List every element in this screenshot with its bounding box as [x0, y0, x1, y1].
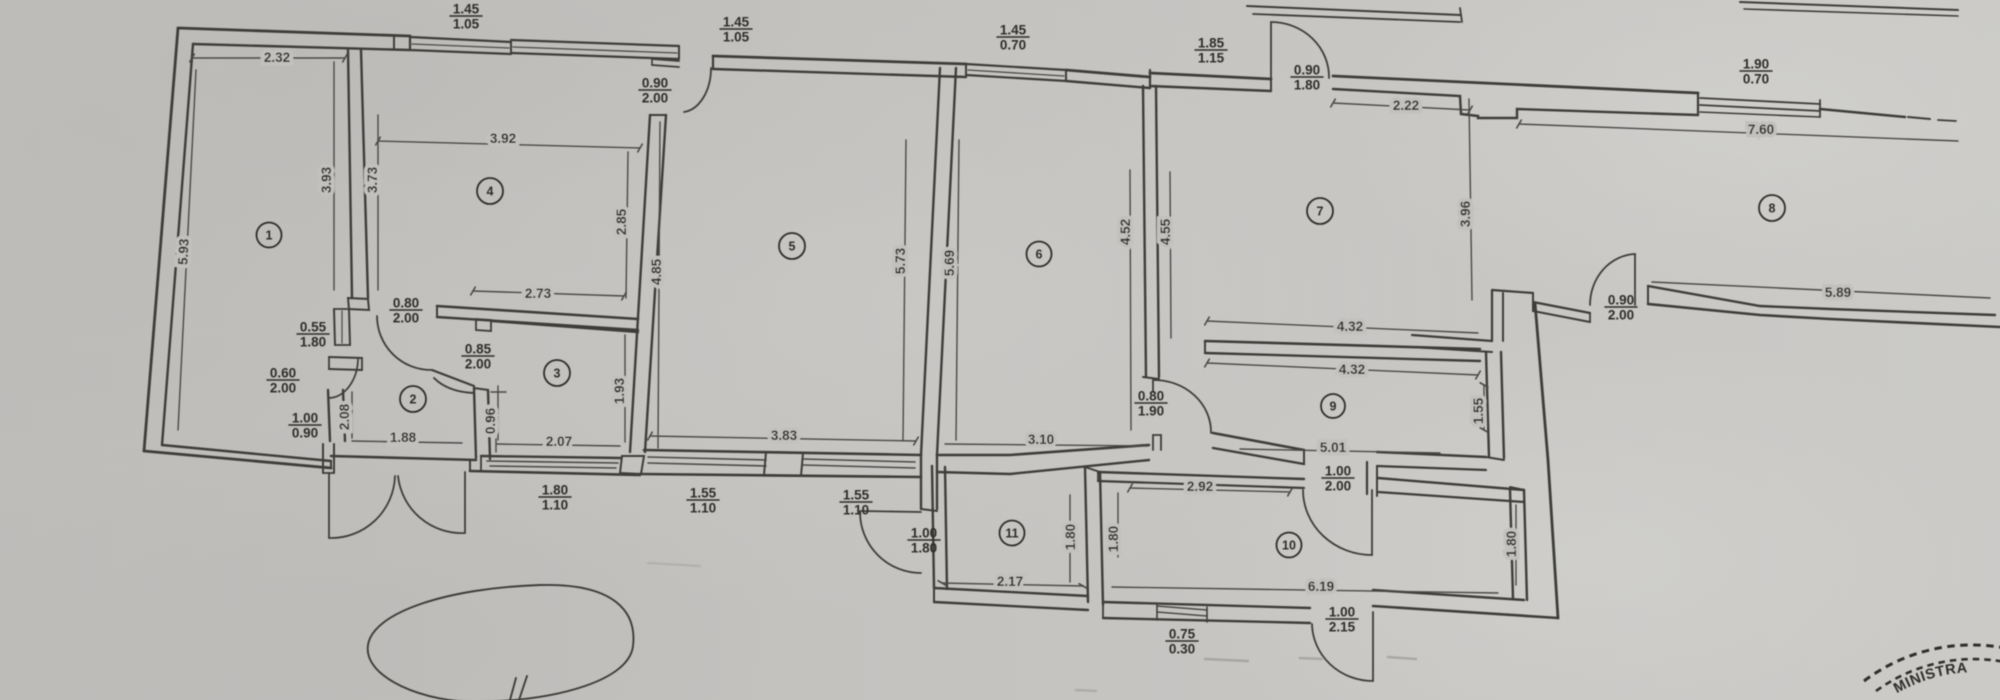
- svg-text:2.22: 2.22: [1393, 98, 1419, 113]
- svg-text:2.00: 2.00: [1608, 308, 1634, 323]
- svg-text:4.55: 4.55: [1158, 218, 1173, 245]
- svg-text:0.60: 0.60: [270, 366, 296, 381]
- svg-text:1.00: 1.00: [1325, 464, 1351, 479]
- svg-text:1: 1: [266, 229, 273, 243]
- svg-text:5.01: 5.01: [1320, 440, 1347, 455]
- svg-text:10: 10: [1282, 539, 1296, 553]
- svg-text:0.70: 0.70: [1000, 38, 1026, 53]
- svg-text:0.80: 0.80: [393, 296, 419, 311]
- svg-text:1.10: 1.10: [542, 498, 568, 513]
- svg-text:1.45: 1.45: [453, 2, 480, 17]
- svg-text:1.45: 1.45: [1000, 23, 1027, 38]
- svg-text:4.32: 4.32: [1337, 319, 1363, 334]
- svg-text:1.80: 1.80: [1063, 524, 1078, 550]
- svg-text:11: 11: [1005, 527, 1018, 541]
- svg-text:0.55: 0.55: [300, 320, 327, 335]
- svg-text:1.55: 1.55: [1471, 397, 1486, 424]
- svg-text:0.90: 0.90: [292, 426, 318, 441]
- svg-text:3.10: 3.10: [1028, 432, 1054, 447]
- svg-text:4.52: 4.52: [1118, 219, 1133, 245]
- svg-text:6.19: 6.19: [1308, 579, 1334, 594]
- svg-text:2.00: 2.00: [465, 357, 491, 372]
- svg-text:5.93: 5.93: [175, 238, 191, 266]
- svg-text:2: 2: [410, 393, 417, 407]
- svg-text:1.80: 1.80: [1106, 526, 1121, 552]
- svg-text:7.60: 7.60: [1748, 122, 1774, 137]
- svg-text:1.05: 1.05: [453, 17, 480, 32]
- svg-text:1.88: 1.88: [390, 430, 417, 445]
- svg-text:4.32: 4.32: [1339, 362, 1365, 377]
- svg-text:5.89: 5.89: [1825, 285, 1851, 300]
- svg-text:2.85: 2.85: [614, 208, 629, 235]
- svg-text:1.15: 1.15: [1198, 51, 1225, 66]
- svg-text:1.45: 1.45: [723, 15, 750, 30]
- svg-text:1.55: 1.55: [690, 486, 717, 501]
- svg-text:2.07: 2.07: [546, 434, 572, 449]
- svg-text:2.17: 2.17: [997, 574, 1023, 589]
- svg-text:8: 8: [1769, 202, 1776, 216]
- svg-text:0.96: 0.96: [483, 407, 498, 434]
- svg-text:4: 4: [487, 185, 494, 199]
- svg-text:0.70: 0.70: [1743, 72, 1769, 87]
- svg-text:9: 9: [1330, 400, 1337, 414]
- svg-text:0.90: 0.90: [1608, 293, 1634, 308]
- svg-text:2.73: 2.73: [525, 286, 552, 301]
- svg-text:1.10: 1.10: [843, 503, 869, 518]
- svg-text:0.90: 0.90: [1294, 63, 1320, 78]
- svg-text:1.80: 1.80: [1294, 78, 1320, 93]
- svg-text:1.00: 1.00: [911, 526, 937, 541]
- svg-text:5.69: 5.69: [942, 250, 957, 276]
- svg-text:1.55: 1.55: [843, 488, 870, 503]
- svg-text:3: 3: [554, 367, 561, 381]
- svg-text:1.90: 1.90: [1743, 57, 1769, 72]
- svg-text:1.00: 1.00: [292, 411, 318, 426]
- svg-text:4.85: 4.85: [649, 258, 664, 285]
- svg-text:3.92: 3.92: [490, 131, 516, 146]
- svg-text:1.80: 1.80: [911, 541, 937, 556]
- svg-text:2.00: 2.00: [270, 381, 296, 396]
- svg-text:2.08: 2.08: [337, 403, 352, 430]
- svg-text:0.85: 0.85: [465, 342, 492, 357]
- svg-text:1.10: 1.10: [690, 501, 716, 516]
- svg-text:1.80: 1.80: [300, 335, 326, 350]
- svg-text:5.73: 5.73: [893, 247, 908, 274]
- svg-text:1.00: 1.00: [1329, 605, 1355, 620]
- svg-text:2.00: 2.00: [1325, 479, 1351, 494]
- svg-text:3.73: 3.73: [365, 166, 380, 193]
- svg-text:3.96: 3.96: [1458, 200, 1473, 227]
- svg-text:1.85: 1.85: [1198, 36, 1225, 51]
- svg-text:7: 7: [1317, 205, 1324, 219]
- svg-text:2.92: 2.92: [1187, 479, 1213, 494]
- svg-text:2.00: 2.00: [642, 91, 668, 106]
- svg-text:2.15: 2.15: [1329, 620, 1356, 635]
- svg-text:0.80: 0.80: [1138, 389, 1164, 404]
- svg-text:1.80: 1.80: [1504, 531, 1519, 557]
- svg-text:3.83: 3.83: [771, 428, 798, 443]
- svg-text:1.05: 1.05: [723, 30, 750, 45]
- svg-text:0.90: 0.90: [642, 76, 668, 91]
- svg-text:5: 5: [789, 240, 796, 254]
- svg-text:1.90: 1.90: [1138, 404, 1164, 419]
- svg-text:0.30: 0.30: [1169, 642, 1195, 657]
- svg-text:6: 6: [1036, 248, 1043, 262]
- svg-text:2.00: 2.00: [393, 311, 419, 326]
- svg-text:1.93: 1.93: [612, 377, 627, 404]
- svg-text:1.80: 1.80: [542, 483, 568, 498]
- svg-text:2.32: 2.32: [264, 50, 290, 65]
- svg-text:0.75: 0.75: [1169, 627, 1196, 642]
- svg-text:3.93: 3.93: [319, 166, 334, 193]
